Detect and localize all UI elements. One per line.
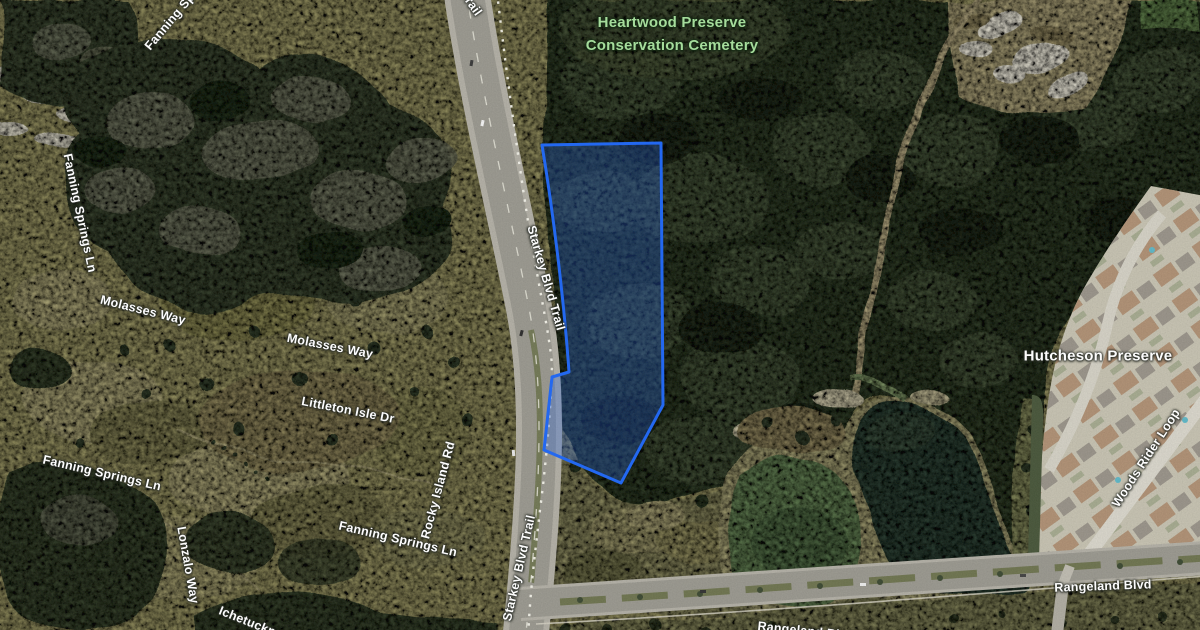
satellite-imagery (0, 0, 1200, 630)
map-canvas[interactable]: Heartwood Preserve Conservation Cemetery… (0, 0, 1200, 630)
